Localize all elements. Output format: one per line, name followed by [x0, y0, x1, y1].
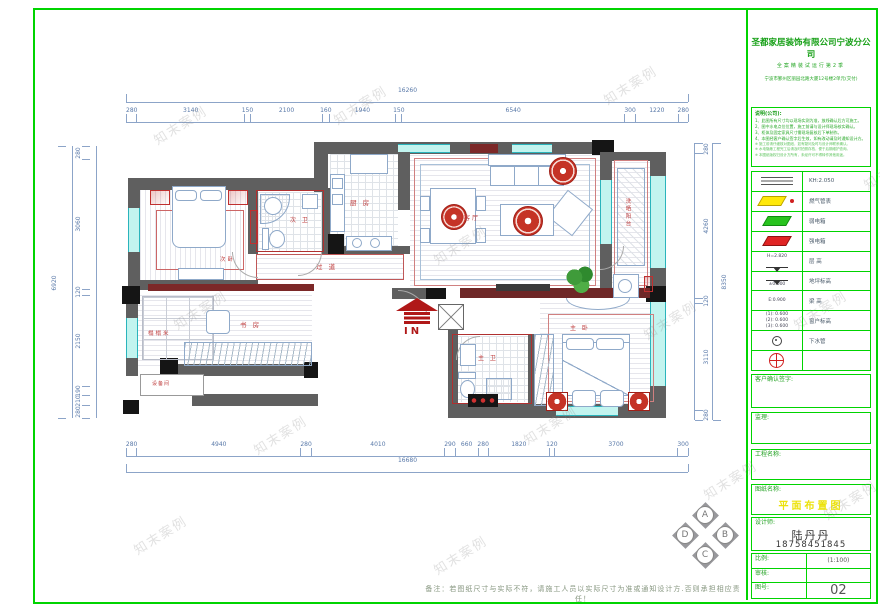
balcony-label: 洗晒阳台 — [624, 198, 630, 228]
drawing-sheet: 过 道 次卧 次 卫 厨 房 餐客厅 — [0, 0, 880, 612]
pillow-2 — [200, 190, 222, 201]
company-slogan: 全案精装试运行第2季 — [748, 62, 874, 69]
study-label: 书 房 — [240, 322, 261, 329]
entry-icon-roof — [396, 298, 438, 311]
legend-label: 层 高 — [803, 252, 870, 271]
project-name-label: 工程名称: — [755, 452, 781, 458]
legend-box: KH:2.050燃气管表弱电箱强电箱H=2.820层 高±0.000地坪标高E:… — [751, 171, 871, 371]
dim-value: 3140 — [183, 108, 198, 114]
window-living-right — [600, 180, 612, 244]
master-chair-1 — [572, 390, 596, 407]
sheet-note: 备注：若图纸尺寸与实际不符，请施工人员以实际尺寸为准或通知设计方.否则承担相应责… — [420, 584, 746, 604]
chair-4 — [476, 228, 486, 243]
compass-letter-c: C — [696, 546, 714, 564]
equipment-label: 设备间 — [152, 382, 170, 387]
toilet-bowl-bath2 — [269, 230, 285, 248]
legend-row: H=2.820层 高 — [752, 252, 870, 272]
legend-label: 地坪标高 — [803, 272, 870, 291]
compass: A D B C — [674, 504, 738, 568]
dim-bottom-overall-value: 16680 — [398, 458, 417, 464]
dim-left-overall: 6920 — [58, 146, 73, 418]
drawing-name-value: 平面布置图 — [752, 497, 870, 512]
dim-value: 4260 — [704, 219, 710, 234]
dim-value: 2150 — [76, 333, 82, 348]
legend-label: 下水管 — [803, 331, 870, 350]
legend-label — [803, 351, 870, 370]
entry-icon-body — [404, 312, 430, 324]
entry-in-label: IN — [404, 326, 422, 337]
kitchen-cabinet — [328, 234, 344, 254]
toilet-tank-bath2 — [262, 228, 269, 250]
dim-bottom-segments: 2804940280401029066028018201203700300 — [126, 440, 688, 457]
chair-1 — [420, 196, 430, 211]
dim-value: 300 — [677, 442, 688, 448]
dim-value: 1220 — [649, 108, 664, 114]
legend-left-text: E:0.900 — [768, 298, 785, 303]
legend-row: 下水管 — [752, 331, 870, 351]
window-left-1 — [128, 208, 140, 252]
fridge — [350, 154, 388, 174]
weak-current-box-icon — [762, 216, 792, 226]
dim-top-overall-value: 16260 — [398, 88, 417, 94]
legend-row: KH:2.050 — [752, 172, 870, 192]
dim-top-overall: 16260 — [126, 90, 688, 103]
burner-2 — [370, 238, 380, 248]
master-bedroom-label: 主 卧 — [570, 326, 590, 332]
sheet-no-row: 图号: 02 — [752, 583, 870, 598]
drawing-name-box: 图纸名称: 平面布置图 — [751, 484, 871, 515]
dim-value: 120 — [704, 296, 710, 307]
corridor-label: 过 道 — [316, 264, 337, 271]
legend-label: 燃气管表 — [803, 192, 870, 211]
rug-medallion — [513, 206, 543, 236]
window-left-2 — [126, 318, 138, 358]
dim-value: 6540 — [506, 108, 521, 114]
wall-study-top — [148, 284, 314, 291]
wall-study-band — [192, 394, 318, 406]
column-study-left — [122, 286, 140, 304]
nightstand-1 — [150, 190, 170, 205]
designer-phone: 18758451845 — [752, 540, 870, 550]
wall-top-mid — [314, 142, 614, 154]
burner-1 — [352, 238, 362, 248]
gas-dot-icon — [790, 199, 794, 203]
notes-items: 1、此图所有尺寸均以现场实测为准，放线确认后方可施工。2、图中水电点位位置，施工… — [752, 118, 870, 157]
basin-bath2 — [264, 197, 282, 215]
dim-value: 300 — [624, 108, 635, 114]
customer-sign-label: 客户确认签字: — [755, 377, 793, 383]
notes-box: 说明(公司): 1、此图所有尺寸均以现场实测为准，放线确认后方可施工。2、图中水… — [751, 107, 871, 167]
designer-box: 设计师: 陆丹丹 18758451845 — [751, 517, 871, 551]
legend-row: (1): 0.600(2): 0.600(3): 0.600窗户标高 — [752, 311, 870, 331]
master-pillow-2 — [596, 338, 624, 350]
sink-bath2 — [302, 194, 318, 209]
shaft-box — [438, 304, 464, 330]
study-chair — [206, 310, 230, 334]
dim-value: 3060 — [76, 217, 82, 232]
heater-stack — [250, 210, 258, 244]
dim-right-overall-value: 8350 — [722, 274, 728, 289]
legend-row — [752, 351, 870, 370]
sheet-no-value: 02 — [807, 583, 870, 598]
dim-value: 280 — [678, 108, 689, 114]
project-name-box: 工程名称: — [751, 449, 871, 480]
company-name: 圣都家居装饰有限公司宁波分公司 — [748, 36, 874, 60]
dim-value: 280 — [76, 147, 82, 158]
legend-row: 弱电箱 — [752, 212, 870, 232]
supervisor-label: 监理: — [755, 415, 769, 421]
dresser-bedroom2 — [178, 268, 224, 280]
window-balcony-right — [650, 176, 666, 268]
dim-right-segments: 28042601203110280 — [694, 143, 709, 420]
legend-row: E:0.900梁 高 — [752, 291, 870, 311]
master-chair-2 — [600, 390, 624, 407]
legend-left-text: (2): 0.600 — [766, 318, 788, 323]
pillow-1 — [175, 190, 197, 201]
legend-label: 梁 高 — [803, 291, 870, 310]
study-wardrobe — [184, 342, 312, 366]
equipment-room — [140, 374, 204, 396]
kitchen-sink-2 — [332, 194, 343, 205]
scale-value: (1:100) — [807, 554, 870, 568]
plant — [566, 266, 594, 294]
strong-current-box-icon — [762, 236, 792, 246]
legend-row: 强电箱 — [752, 232, 870, 252]
master-sink — [460, 344, 476, 366]
dim-value: 280 — [704, 410, 710, 421]
master-toilet-tank — [458, 372, 476, 379]
master-stool-1 — [546, 392, 568, 411]
drawing-name-label: 图纸名称: — [755, 487, 781, 493]
crosshair-icon — [769, 353, 784, 368]
corner-medallion — [549, 157, 577, 185]
check-value — [807, 569, 870, 583]
designer-label: 设计师: — [755, 520, 775, 526]
dim-value: 280 — [704, 143, 710, 154]
column-study-bl — [123, 400, 139, 414]
dim-value: 660 — [461, 442, 472, 448]
balcony-cabinet — [644, 276, 653, 292]
wall-kitchen-right — [398, 152, 410, 210]
dim-top-segments: 28031401502100160194015065403001220280 — [126, 106, 688, 123]
scale-table: 比例: (1:100) 审核: 图号: 02 — [751, 553, 871, 599]
scale-label: 比例: — [755, 556, 769, 562]
bath2-label: 次 卫 — [290, 218, 310, 224]
legend-left-text: (1): 0.600 — [766, 312, 788, 317]
legend-label: 强电箱 — [803, 232, 870, 251]
company-address: 宁波市鄞州区丽园北路大厦12号楼2单元(交付) — [748, 76, 874, 82]
title-block-divider — [746, 8, 748, 600]
dim-value: 3110 — [704, 349, 710, 364]
legend-label: KH:2.050 — [803, 172, 870, 191]
check-row: 审核: — [752, 569, 870, 584]
level-marker-icon — [766, 274, 788, 281]
dim-value: 4940 — [211, 442, 226, 448]
legend-row: 燃气管表 — [752, 192, 870, 212]
dim-left-overall-value: 6920 — [52, 275, 58, 290]
dim-value: 4010 — [370, 442, 385, 448]
flooring-lines-icon — [761, 177, 793, 185]
dim-value: 2100 — [279, 108, 294, 114]
master-stool-2 — [628, 392, 650, 411]
legend-left-text: (3): 0.600 — [766, 324, 788, 329]
dim-value: 280 — [76, 406, 82, 417]
kitchen-sink-1 — [332, 178, 343, 189]
legend-left-text: H=2.820 — [767, 254, 787, 259]
nightstand-2 — [228, 190, 248, 205]
legend-row: ±0.000地坪标高 — [752, 272, 870, 292]
sheet-no-label: 图号: — [755, 585, 769, 591]
notes-title: 说明(公司): — [755, 110, 867, 117]
master-bath-label: 主 卫 — [478, 356, 498, 362]
scale-row: 比例: (1:100) — [752, 554, 870, 569]
gas-meter-icon — [760, 196, 794, 206]
level-marker-icon — [766, 261, 788, 268]
check-label: 审核: — [755, 571, 769, 577]
dim-right-overall: 8350 — [712, 143, 727, 420]
chair-2 — [420, 228, 430, 243]
window-top-2 — [512, 144, 552, 153]
washer-drum — [618, 279, 632, 293]
compass-letter-a: A — [696, 506, 714, 524]
master-pillow-1 — [566, 338, 594, 350]
dim-value: 1820 — [511, 442, 526, 448]
living-label: 餐客厅 — [456, 216, 480, 222]
compass-letter-d: D — [676, 526, 694, 544]
legend-label: 弱电箱 — [803, 212, 870, 231]
dim-bottom-overall: 16680 — [126, 458, 688, 473]
master-bath-appliance — [468, 394, 498, 407]
dim-left-segments: 28030601202150190210280 — [82, 146, 97, 418]
supervisor-box: 监理: — [751, 412, 871, 444]
wall-top-red — [470, 144, 498, 153]
tatami-label: 榻榻米 — [148, 332, 171, 338]
legend-label: 窗户标高 — [803, 311, 870, 330]
chair-3 — [476, 196, 486, 211]
dim-value: 3700 — [608, 442, 623, 448]
tv-console — [496, 284, 550, 291]
compass-letter-b: B — [716, 526, 734, 544]
drain-pipe-icon — [772, 336, 782, 346]
dim-value: 1940 — [355, 108, 370, 114]
kitchen-label: 厨 房 — [350, 200, 371, 207]
customer-sign-box: 客户确认签字: — [751, 374, 871, 408]
gas-parallelogram-icon — [757, 196, 787, 206]
